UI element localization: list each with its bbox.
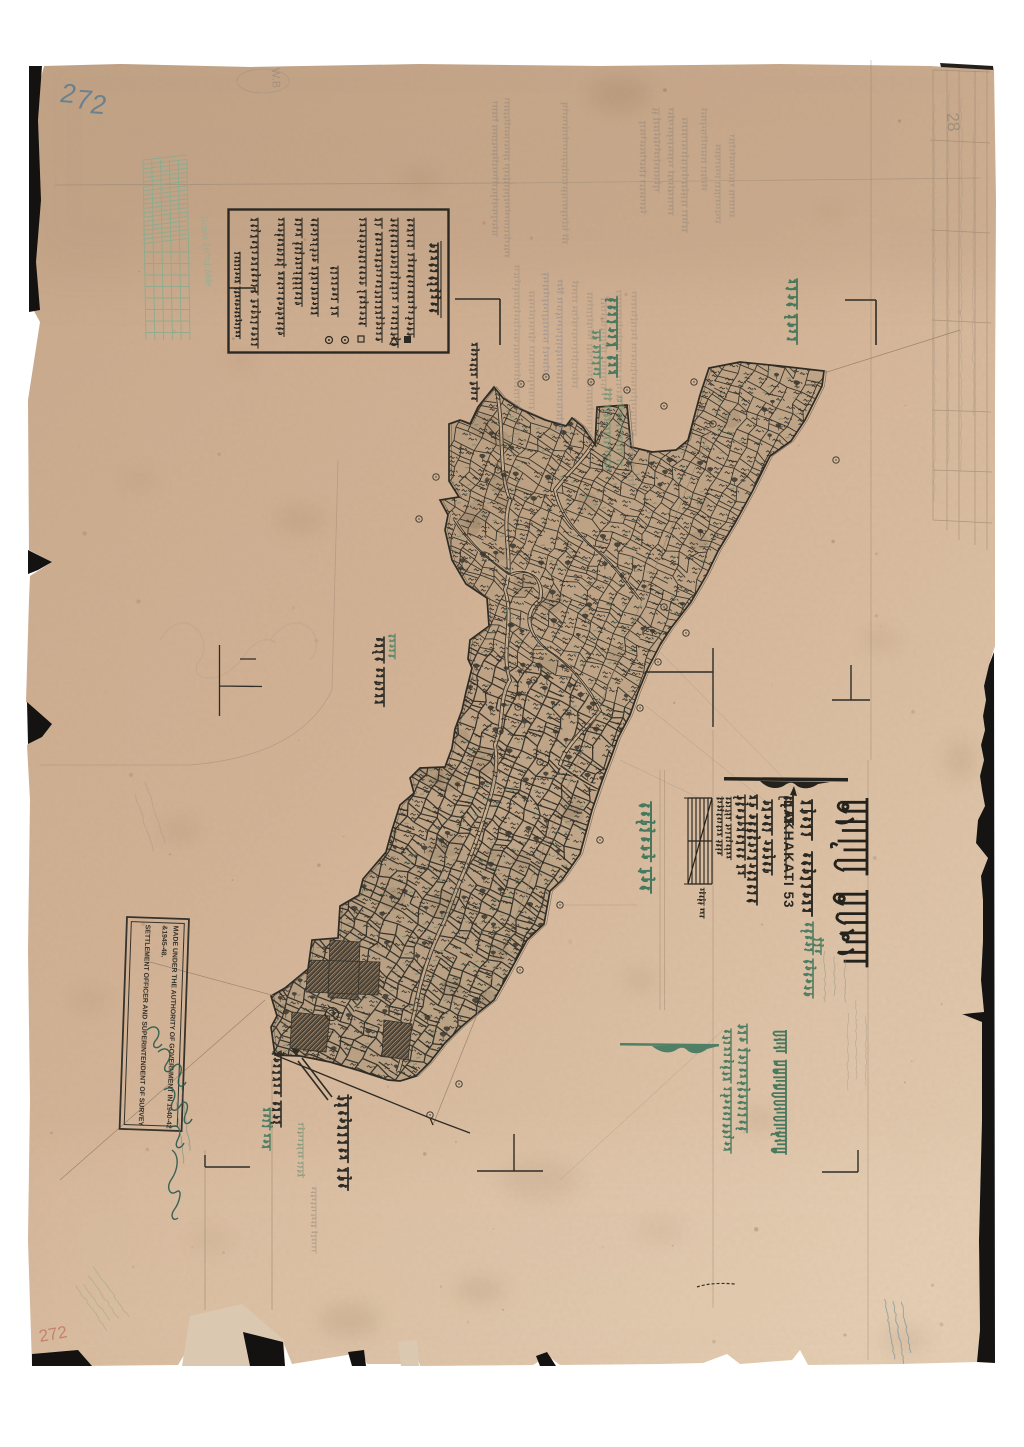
svg-text:LAKHAKATI 53: LAKHAKATI 53 [781, 800, 796, 909]
svg-text:2: 2 [89, 89, 107, 120]
svg-text:28: 28 [943, 112, 963, 132]
svg-text:2: 2 [59, 78, 77, 109]
svg-text:W.B: W.B [269, 68, 282, 89]
svg-text:&1945-48.: &1945-48. [160, 925, 168, 957]
